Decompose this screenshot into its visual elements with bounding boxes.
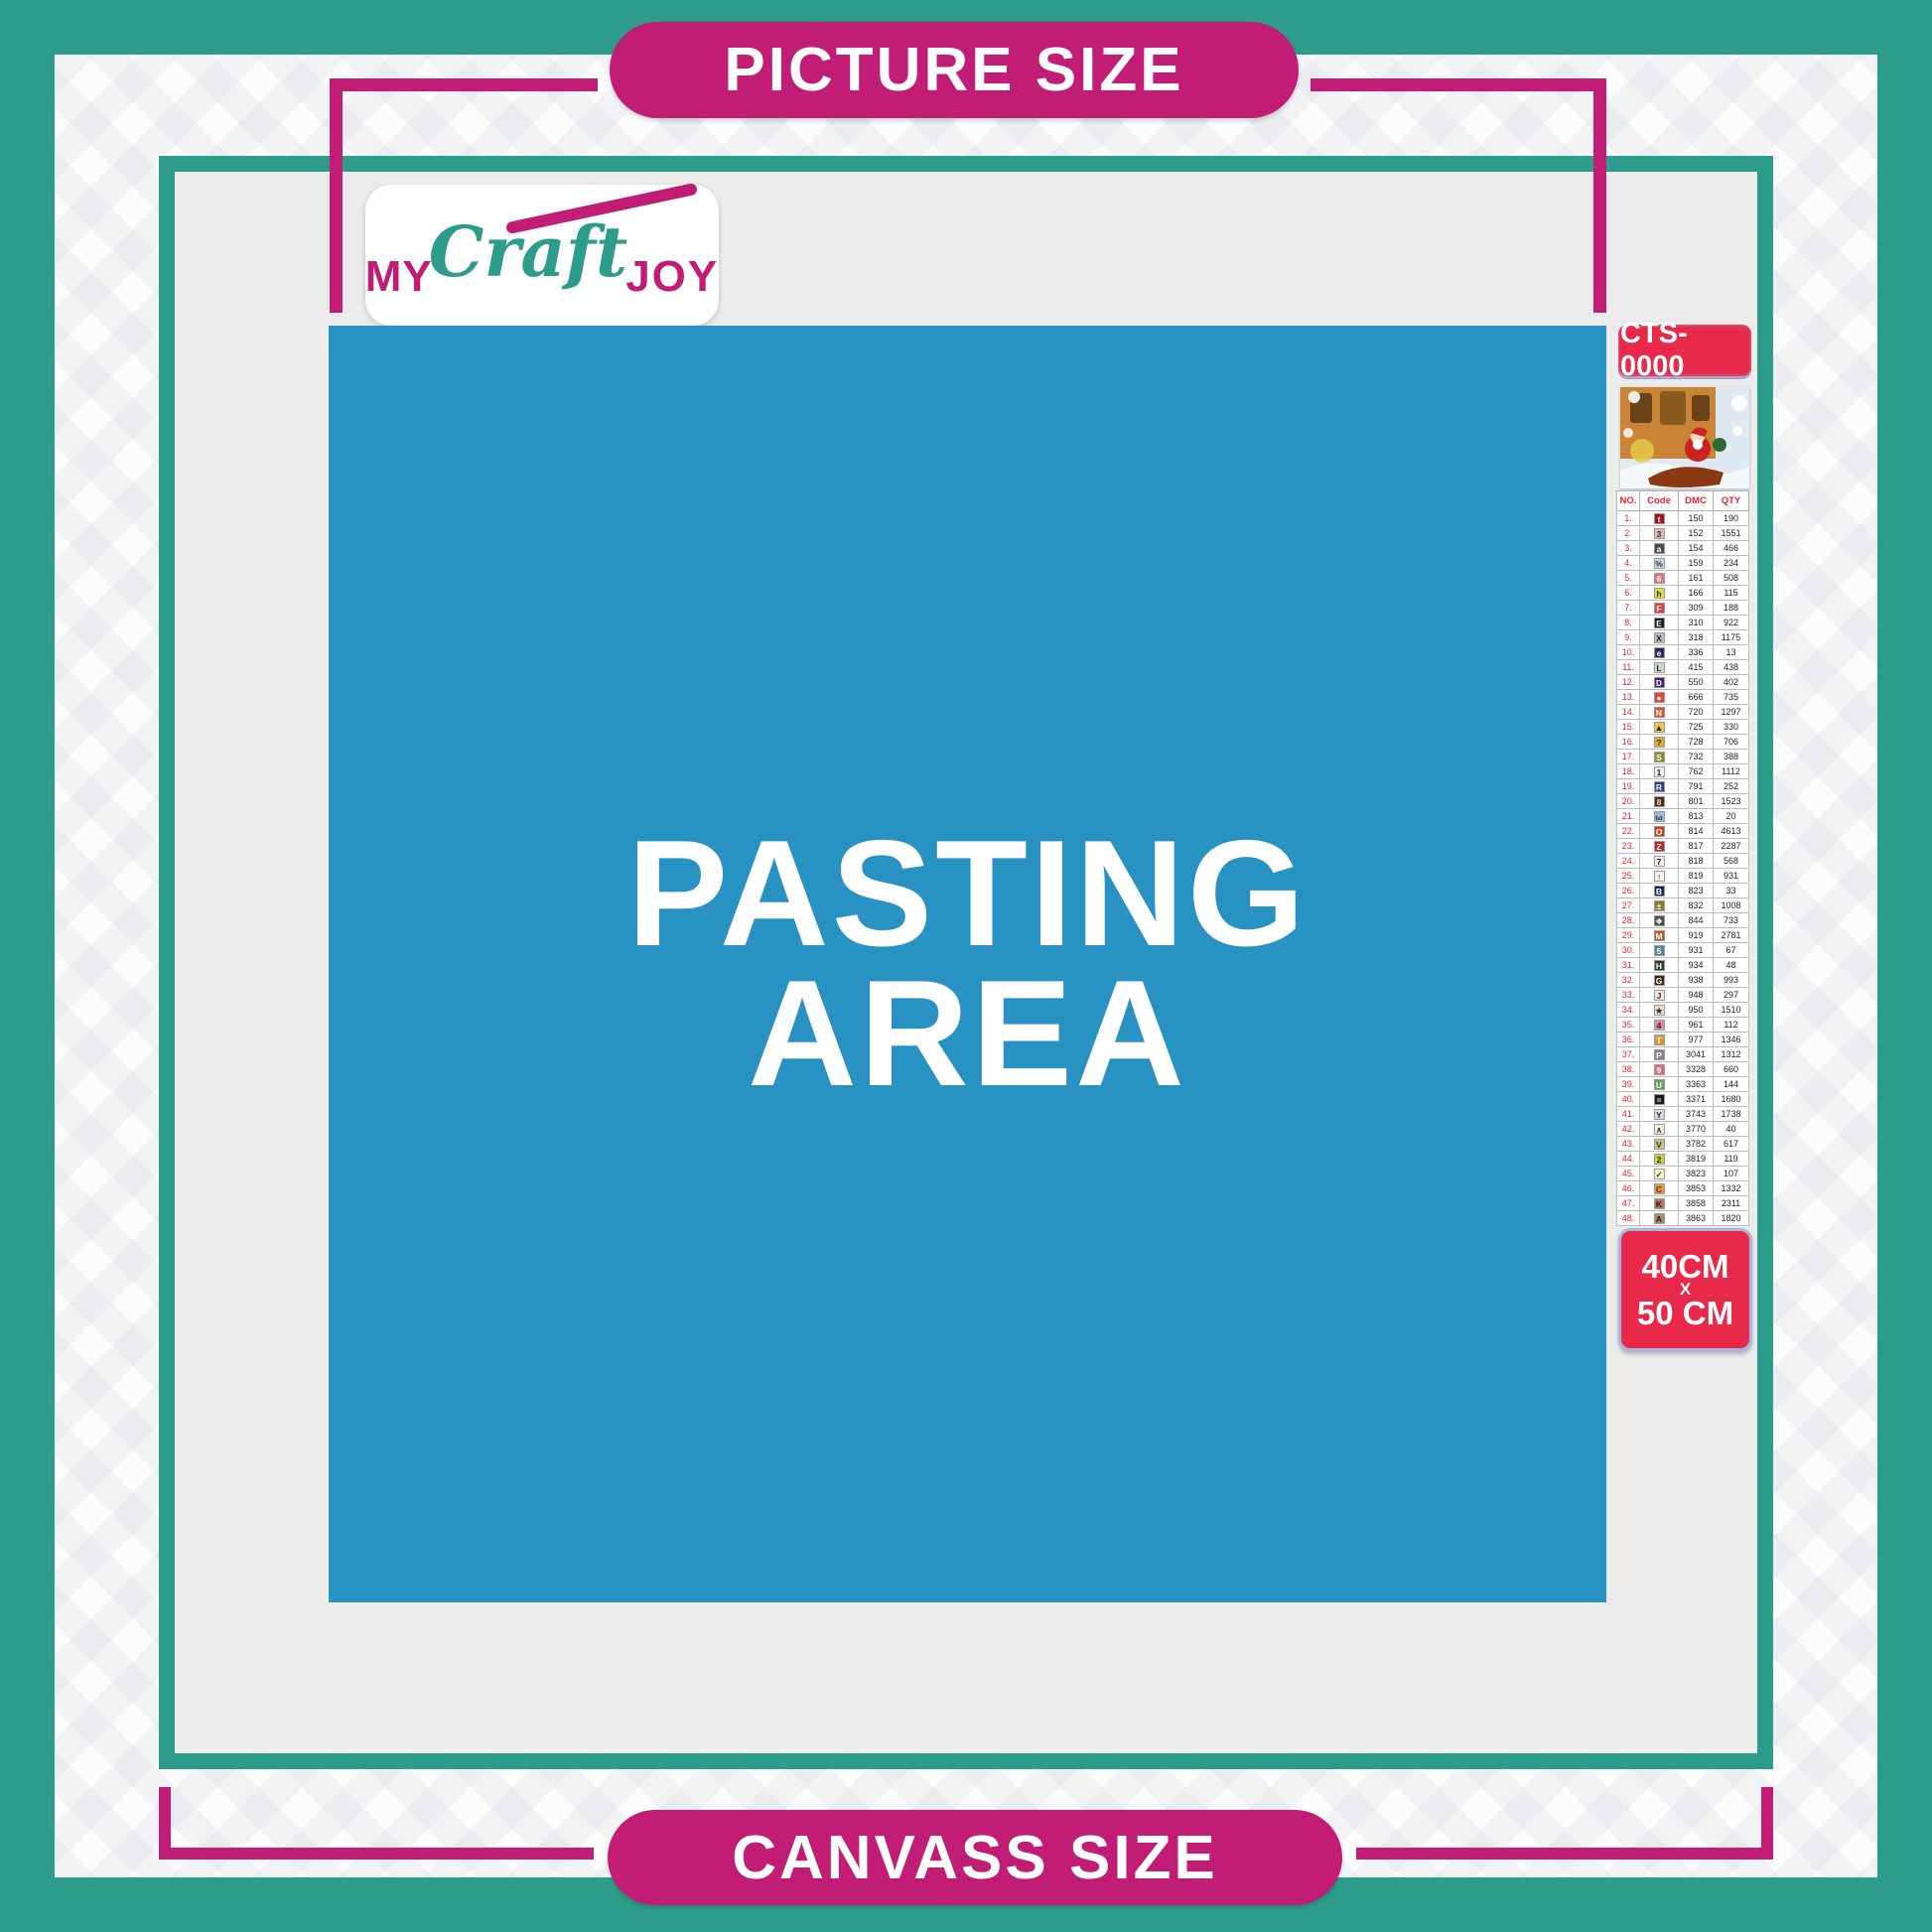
- row-qty: 67: [1714, 943, 1749, 958]
- row-dmc: 3743: [1679, 1107, 1714, 1122]
- row-no: 2.: [1617, 526, 1640, 541]
- row-qty: 1510: [1714, 1003, 1749, 1018]
- pasting-area-line1: PASTING: [627, 824, 1308, 964]
- color-table-row: 25.↑819931: [1617, 869, 1749, 884]
- row-code-cell: 7: [1640, 854, 1679, 869]
- row-dmc: 3819: [1679, 1152, 1714, 1167]
- row-qty: 568: [1714, 854, 1749, 869]
- row-code-cell: 9: [1640, 1062, 1679, 1077]
- row-no: 6.: [1617, 586, 1640, 601]
- row-dmc: 720: [1679, 705, 1714, 720]
- row-no: 17.: [1617, 750, 1640, 764]
- color-symbol-swatch: U: [1654, 1079, 1665, 1090]
- row-dmc: 817: [1679, 839, 1714, 854]
- row-dmc: 801: [1679, 794, 1714, 809]
- color-symbol-swatch: 6: [1654, 573, 1665, 584]
- color-symbol-swatch: K: [1654, 1198, 1665, 1209]
- color-symbol-swatch: C: [1654, 1183, 1665, 1194]
- row-no: 32.: [1617, 973, 1640, 988]
- color-table-row: 48.A38631820: [1617, 1211, 1749, 1226]
- row-code-cell: ✓: [1640, 1167, 1679, 1181]
- color-table-row: 44.23819119: [1617, 1152, 1749, 1167]
- row-dmc: 725: [1679, 720, 1714, 735]
- color-table-row: 42.∧377040: [1617, 1122, 1749, 1137]
- color-symbol-swatch: 2: [1654, 1154, 1665, 1165]
- canvass-bracket-line-left: [159, 1848, 594, 1860]
- row-qty: 1332: [1714, 1181, 1749, 1196]
- row-code-cell: X: [1640, 630, 1679, 645]
- row-dmc: 844: [1679, 913, 1714, 928]
- canvass-bracket-line-right: [1356, 1848, 1773, 1860]
- row-qty: 1680: [1714, 1092, 1749, 1107]
- row-dmc: 161: [1679, 571, 1714, 586]
- row-qty: 107: [1714, 1167, 1749, 1181]
- row-no: 29.: [1617, 928, 1640, 943]
- color-table-row: 36.T9771346: [1617, 1033, 1749, 1047]
- row-no: 34.: [1617, 1003, 1640, 1018]
- color-symbol-swatch: P: [1654, 1049, 1665, 1060]
- row-qty: 508: [1714, 571, 1749, 586]
- row-qty: 115: [1714, 586, 1749, 601]
- color-table-row: 30.593167: [1617, 943, 1749, 958]
- row-code-cell: D: [1640, 675, 1679, 690]
- color-symbol-swatch: A: [1654, 1213, 1665, 1224]
- row-code-cell: F: [1640, 601, 1679, 616]
- color-symbol-swatch: T: [1654, 1035, 1665, 1045]
- pasting-area-line2: AREA: [748, 964, 1187, 1104]
- color-symbol-swatch: Z: [1654, 841, 1665, 852]
- color-table-row: 23.Z8172287: [1617, 839, 1749, 854]
- color-table-row: 38.93328660: [1617, 1062, 1749, 1077]
- picture-size-label: PICTURE SIZE: [724, 35, 1183, 105]
- row-qty: 1175: [1714, 630, 1749, 645]
- row-qty: 48: [1714, 958, 1749, 973]
- color-table-row: 26.B82333: [1617, 884, 1749, 898]
- row-no: 47.: [1617, 1196, 1640, 1211]
- row-dmc: 732: [1679, 750, 1714, 764]
- row-qty: 1008: [1714, 898, 1749, 913]
- row-dmc: 919: [1679, 928, 1714, 943]
- color-symbol-swatch: 3: [1654, 528, 1665, 539]
- row-code-cell: ?: [1640, 735, 1679, 750]
- row-dmc: 728: [1679, 735, 1714, 750]
- color-symbol-swatch: ▲: [1654, 722, 1665, 733]
- color-symbol-swatch: ±: [1654, 900, 1665, 911]
- header-code: Code: [1640, 491, 1679, 511]
- color-chart: NO. Code DMC QTY 1.t1501902.315215513.a1…: [1616, 490, 1748, 1226]
- row-qty: 1297: [1714, 705, 1749, 720]
- row-dmc: 762: [1679, 764, 1714, 779]
- color-symbol-swatch: %: [1654, 558, 1665, 569]
- logo-word-joy: JOY: [625, 252, 719, 302]
- color-table-row: 47.K38582311: [1617, 1196, 1749, 1211]
- row-dmc: 813: [1679, 809, 1714, 824]
- diamond-painting-kit-infographic: PICTURE SIZE CANVASS SIZE MY Craft JOY P…: [0, 0, 1932, 1932]
- row-qty: 993: [1714, 973, 1749, 988]
- color-table-row: 34.★9501510: [1617, 1003, 1749, 1018]
- color-table-row: 3.a154466: [1617, 541, 1749, 556]
- row-dmc: 3328: [1679, 1062, 1714, 1077]
- row-qty: 1312: [1714, 1047, 1749, 1062]
- row-no: 12.: [1617, 675, 1640, 690]
- row-dmc: 931: [1679, 943, 1714, 958]
- row-no: 44.: [1617, 1152, 1640, 1167]
- color-table-row: 40.=33711680: [1617, 1092, 1749, 1107]
- row-code-cell: O: [1640, 824, 1679, 839]
- row-qty: 2287: [1714, 839, 1749, 854]
- kit-sku-text: CTS-0000: [1620, 318, 1749, 383]
- color-symbol-swatch: 8: [1654, 796, 1665, 807]
- picture-bracket-stub-right: [1593, 78, 1606, 313]
- row-no: 15.: [1617, 720, 1640, 735]
- row-qty: 466: [1714, 541, 1749, 556]
- row-dmc: 3858: [1679, 1196, 1714, 1211]
- row-dmc: 309: [1679, 601, 1714, 616]
- row-qty: 1112: [1714, 764, 1749, 779]
- row-code-cell: L: [1640, 660, 1679, 675]
- row-code-cell: t: [1640, 511, 1679, 526]
- row-no: 4.: [1617, 556, 1640, 571]
- row-no: 30.: [1617, 943, 1640, 958]
- row-no: 16.: [1617, 735, 1640, 750]
- row-code-cell: ●: [1640, 690, 1679, 705]
- row-dmc: 823: [1679, 884, 1714, 898]
- color-table-row: 21.ω81320: [1617, 809, 1749, 824]
- row-no: 40.: [1617, 1092, 1640, 1107]
- color-table-row: 43.V3782617: [1617, 1137, 1749, 1152]
- row-qty: 402: [1714, 675, 1749, 690]
- row-qty: 190: [1714, 511, 1749, 526]
- color-symbol-swatch: ω: [1654, 811, 1665, 822]
- row-qty: 20: [1714, 809, 1749, 824]
- row-code-cell: 3: [1640, 526, 1679, 541]
- color-table-row: 45.✓3823107: [1617, 1167, 1749, 1181]
- row-code-cell: 1: [1640, 764, 1679, 779]
- row-qty: 188: [1714, 601, 1749, 616]
- row-qty: 2781: [1714, 928, 1749, 943]
- row-code-cell: h: [1640, 586, 1679, 601]
- color-symbol-swatch: ❖: [1654, 915, 1665, 926]
- row-code-cell: A: [1640, 1211, 1679, 1226]
- row-dmc: 814: [1679, 824, 1714, 839]
- row-no: 45.: [1617, 1167, 1640, 1181]
- color-symbol-swatch: 4: [1654, 1020, 1665, 1031]
- row-no: 28.: [1617, 913, 1640, 928]
- color-symbol-swatch: ✓: [1654, 1169, 1665, 1179]
- row-code-cell: 5: [1640, 943, 1679, 958]
- row-no: 35.: [1617, 1018, 1640, 1033]
- color-table-row: 29.M9192781: [1617, 928, 1749, 943]
- row-qty: 33: [1714, 884, 1749, 898]
- row-no: 3.: [1617, 541, 1640, 556]
- size-height: 50 CM: [1637, 1298, 1733, 1328]
- color-symbol-swatch: ?: [1654, 737, 1665, 748]
- canvass-bracket-stub-right: [1761, 1787, 1773, 1860]
- color-table-row: 46.C38531332: [1617, 1181, 1749, 1196]
- row-no: 7.: [1617, 601, 1640, 616]
- color-table-row: 20.88011523: [1617, 794, 1749, 809]
- row-qty: 733: [1714, 913, 1749, 928]
- picture-size-banner: PICTURE SIZE: [610, 22, 1299, 118]
- row-dmc: 3770: [1679, 1122, 1714, 1137]
- color-chart-header-row: NO. Code DMC QTY: [1617, 491, 1749, 511]
- row-no: 25.: [1617, 869, 1640, 884]
- row-no: 10.: [1617, 645, 1640, 660]
- row-no: 20.: [1617, 794, 1640, 809]
- row-code-cell: 8: [1640, 794, 1679, 809]
- row-dmc: 336: [1679, 645, 1714, 660]
- color-symbol-swatch: h: [1654, 588, 1665, 599]
- canvass-size-banner: CANVASS SIZE: [608, 1810, 1342, 1905]
- row-no: 38.: [1617, 1062, 1640, 1077]
- color-table-row: 5.6161508: [1617, 571, 1749, 586]
- row-code-cell: H: [1640, 958, 1679, 973]
- row-qty: 922: [1714, 616, 1749, 630]
- row-code-cell: ❖: [1640, 913, 1679, 928]
- color-symbol-swatch: M: [1654, 930, 1665, 941]
- row-code-cell: Y: [1640, 1107, 1679, 1122]
- row-qty: 660: [1714, 1062, 1749, 1077]
- color-table-row: 35.4961112: [1617, 1018, 1749, 1033]
- row-dmc: 159: [1679, 556, 1714, 571]
- row-code-cell: 6: [1640, 571, 1679, 586]
- row-code-cell: e: [1640, 645, 1679, 660]
- canvas-size-badge: 40CM X 50 CM: [1618, 1228, 1752, 1351]
- header-dmc: DMC: [1679, 491, 1714, 511]
- color-table-row: 41.Y37431738: [1617, 1107, 1749, 1122]
- row-no: 19.: [1617, 779, 1640, 794]
- row-no: 26.: [1617, 884, 1640, 898]
- row-code-cell: ▲: [1640, 720, 1679, 735]
- row-no: 22.: [1617, 824, 1640, 839]
- row-no: 8.: [1617, 616, 1640, 630]
- row-code-cell: M: [1640, 928, 1679, 943]
- row-no: 31.: [1617, 958, 1640, 973]
- row-code-cell: ★: [1640, 1003, 1679, 1018]
- row-code-cell: R: [1640, 779, 1679, 794]
- row-dmc: 977: [1679, 1033, 1714, 1047]
- color-table-row: 32.G938993: [1617, 973, 1749, 988]
- row-dmc: 3863: [1679, 1211, 1714, 1226]
- row-qty: 1738: [1714, 1107, 1749, 1122]
- row-qty: 144: [1714, 1077, 1749, 1092]
- row-no: 23.: [1617, 839, 1640, 854]
- row-no: 37.: [1617, 1047, 1640, 1062]
- color-symbol-swatch: D: [1654, 677, 1665, 688]
- row-dmc: 934: [1679, 958, 1714, 973]
- color-table-row: 33.J948297: [1617, 988, 1749, 1003]
- row-dmc: 150: [1679, 511, 1714, 526]
- color-symbol-swatch: t: [1654, 513, 1665, 524]
- color-symbol-swatch: N: [1654, 707, 1665, 718]
- color-symbol-swatch: H: [1654, 960, 1665, 971]
- row-no: 36.: [1617, 1033, 1640, 1047]
- row-dmc: 950: [1679, 1003, 1714, 1018]
- row-no: 41.: [1617, 1107, 1640, 1122]
- color-table-row: 4.%159234: [1617, 556, 1749, 571]
- color-table-row: 37.P30411312: [1617, 1047, 1749, 1062]
- row-qty: 617: [1714, 1137, 1749, 1152]
- row-code-cell: V: [1640, 1137, 1679, 1152]
- color-symbol-swatch: G: [1654, 975, 1665, 986]
- row-qty: 234: [1714, 556, 1749, 571]
- row-qty: 2311: [1714, 1196, 1749, 1211]
- color-symbol-swatch: L: [1654, 662, 1665, 673]
- color-symbol-swatch: ★: [1654, 1005, 1665, 1016]
- row-code-cell: a: [1640, 541, 1679, 556]
- canvass-size-label: CANVASS SIZE: [732, 1823, 1218, 1893]
- color-symbol-swatch: 1: [1654, 766, 1665, 777]
- pasting-area: PASTING AREA: [329, 326, 1606, 1602]
- color-table-row: 13.●666735: [1617, 690, 1749, 705]
- row-no: 24.: [1617, 854, 1640, 869]
- row-dmc: 3782: [1679, 1137, 1714, 1152]
- row-code-cell: =: [1640, 1092, 1679, 1107]
- row-dmc: 166: [1679, 586, 1714, 601]
- row-code-cell: 4: [1640, 1018, 1679, 1033]
- header-qty: QTY: [1714, 491, 1749, 511]
- color-table-row: 15.▲725330: [1617, 720, 1749, 735]
- color-symbol-swatch: J: [1654, 990, 1665, 1001]
- row-no: 18.: [1617, 764, 1640, 779]
- color-table-row: 28.❖844733: [1617, 913, 1749, 928]
- row-code-cell: ↑: [1640, 869, 1679, 884]
- row-no: 48.: [1617, 1211, 1640, 1226]
- row-dmc: 3363: [1679, 1077, 1714, 1092]
- row-dmc: 3371: [1679, 1092, 1714, 1107]
- row-qty: 735: [1714, 690, 1749, 705]
- picture-bracket-stub-left: [330, 78, 343, 313]
- row-dmc: 948: [1679, 988, 1714, 1003]
- row-code-cell: Z: [1640, 839, 1679, 854]
- row-code-cell: U: [1640, 1077, 1679, 1092]
- color-symbol-swatch: ∧: [1654, 1124, 1665, 1135]
- color-table-row: 24.7818568: [1617, 854, 1749, 869]
- row-no: 46.: [1617, 1181, 1640, 1196]
- color-table-row: 2.31521551: [1617, 526, 1749, 541]
- color-table-row: 19.R791252: [1617, 779, 1749, 794]
- row-dmc: 318: [1679, 630, 1714, 645]
- row-qty: 1551: [1714, 526, 1749, 541]
- row-qty: 706: [1714, 735, 1749, 750]
- color-table-row: 22.O8144613: [1617, 824, 1749, 839]
- color-symbol-swatch: 7: [1654, 856, 1665, 867]
- row-no: 11.: [1617, 660, 1640, 675]
- color-table-row: 27.±8321008: [1617, 898, 1749, 913]
- row-dmc: 415: [1679, 660, 1714, 675]
- row-qty: 1820: [1714, 1211, 1749, 1226]
- row-qty: 330: [1714, 720, 1749, 735]
- color-symbol-swatch: O: [1654, 826, 1665, 837]
- size-width: 40CM: [1641, 1251, 1728, 1282]
- color-table-row: 7.F309188: [1617, 601, 1749, 616]
- row-no: 9.: [1617, 630, 1640, 645]
- row-dmc: 154: [1679, 541, 1714, 556]
- color-symbol-swatch: =: [1654, 1094, 1665, 1105]
- row-dmc: 310: [1679, 616, 1714, 630]
- row-code-cell: C: [1640, 1181, 1679, 1196]
- row-code-cell: T: [1640, 1033, 1679, 1047]
- row-qty: 438: [1714, 660, 1749, 675]
- color-table-row: 9.X3181175: [1617, 630, 1749, 645]
- row-code-cell: ±: [1640, 898, 1679, 913]
- row-code-cell: ∧: [1640, 1122, 1679, 1137]
- logo-word-my: MY: [365, 252, 433, 302]
- row-no: 5.: [1617, 571, 1640, 586]
- picture-bracket-line-right: [1311, 78, 1606, 91]
- row-code-cell: S: [1640, 750, 1679, 764]
- color-table-body: 1.t1501902.315215513.a1544664.%1592345.6…: [1617, 511, 1749, 1226]
- color-symbol-swatch: R: [1654, 781, 1665, 792]
- row-qty: 388: [1714, 750, 1749, 764]
- canvass-bracket-stub-left: [159, 1787, 171, 1860]
- color-table-row: 17.S732388: [1617, 750, 1749, 764]
- color-symbol-swatch: S: [1654, 752, 1665, 762]
- color-symbol-swatch: B: [1654, 886, 1665, 897]
- row-no: 33.: [1617, 988, 1640, 1003]
- color-table-row: 6.h166115: [1617, 586, 1749, 601]
- row-qty: 4613: [1714, 824, 1749, 839]
- color-table-row: 18.17621112: [1617, 764, 1749, 779]
- row-code-cell: 2: [1640, 1152, 1679, 1167]
- brand-logo: MY Craft JOY: [365, 185, 719, 326]
- row-dmc: 961: [1679, 1018, 1714, 1033]
- row-dmc: 818: [1679, 854, 1714, 869]
- row-qty: 40: [1714, 1122, 1749, 1137]
- color-table-row: 39.U3363144: [1617, 1077, 1749, 1092]
- row-qty: 931: [1714, 869, 1749, 884]
- color-symbol-swatch: F: [1654, 603, 1665, 614]
- row-code-cell: ω: [1640, 809, 1679, 824]
- row-dmc: 666: [1679, 690, 1714, 705]
- row-dmc: 152: [1679, 526, 1714, 541]
- row-code-cell: J: [1640, 988, 1679, 1003]
- row-qty: 119: [1714, 1152, 1749, 1167]
- row-qty: 112: [1714, 1018, 1749, 1033]
- row-no: 1.: [1617, 511, 1640, 526]
- color-symbol-swatch: ↑: [1654, 871, 1665, 882]
- color-table-row: 14.N7201297: [1617, 705, 1749, 720]
- row-dmc: 791: [1679, 779, 1714, 794]
- color-symbol-swatch: Y: [1654, 1109, 1665, 1120]
- row-dmc: 832: [1679, 898, 1714, 913]
- row-dmc: 3041: [1679, 1047, 1714, 1062]
- color-table-row: 1.t150190: [1617, 511, 1749, 526]
- row-no: 39.: [1617, 1077, 1640, 1092]
- color-symbol-swatch: X: [1654, 632, 1665, 643]
- row-qty: 1523: [1714, 794, 1749, 809]
- row-dmc: 3823: [1679, 1167, 1714, 1181]
- kit-preview-image: [1620, 387, 1749, 488]
- row-qty: 252: [1714, 779, 1749, 794]
- color-symbol-swatch: a: [1654, 543, 1665, 554]
- row-no: 21.: [1617, 809, 1640, 824]
- color-symbol-swatch: ●: [1654, 692, 1665, 703]
- row-dmc: 550: [1679, 675, 1714, 690]
- row-no: 43.: [1617, 1137, 1640, 1152]
- row-code-cell: K: [1640, 1196, 1679, 1211]
- color-symbol-swatch: V: [1654, 1139, 1665, 1150]
- row-code-cell: P: [1640, 1047, 1679, 1062]
- color-table-row: 8.E310922: [1617, 616, 1749, 630]
- row-dmc: 819: [1679, 869, 1714, 884]
- header-no: NO.: [1617, 491, 1640, 511]
- kit-sku-badge: CTS-0000: [1618, 325, 1751, 376]
- row-code-cell: B: [1640, 884, 1679, 898]
- color-table-row: 11.L415438: [1617, 660, 1749, 675]
- color-symbol-swatch: 9: [1654, 1064, 1665, 1075]
- row-code-cell: N: [1640, 705, 1679, 720]
